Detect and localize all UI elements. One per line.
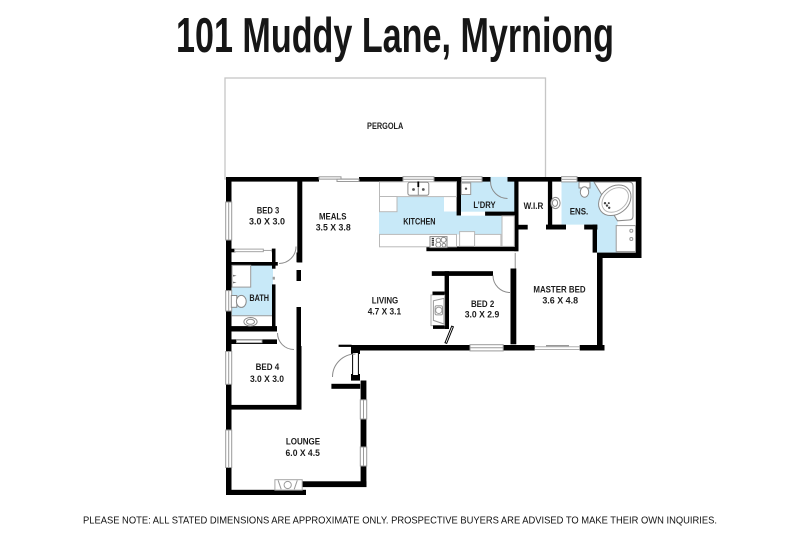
svg-text:W.I.R: W.I.R (524, 201, 544, 212)
svg-text:3.6 X 4.8: 3.6 X 4.8 (542, 295, 578, 306)
svg-text:PERGOLA: PERGOLA (367, 121, 404, 131)
svg-text:LIVING: LIVING (372, 295, 398, 306)
svg-text:BATH: BATH (249, 293, 269, 304)
svg-text:BED 4: BED 4 (256, 362, 280, 373)
svg-text:4.7 X 3.1: 4.7 X 3.1 (368, 307, 402, 318)
svg-text:BED 3: BED 3 (257, 205, 279, 216)
svg-text:BED 2: BED 2 (471, 299, 494, 310)
svg-text:101 Muddy Lane, Myrniong: 101 Muddy Lane, Myrniong (176, 9, 614, 63)
svg-text:3.0 X 2.9: 3.0 X 2.9 (465, 310, 500, 321)
svg-text:3.0 X 3.0: 3.0 X 3.0 (249, 217, 285, 228)
svg-text:ENS.: ENS. (570, 206, 589, 217)
svg-text:3.5 X 3.8: 3.5 X 3.8 (316, 223, 351, 234)
svg-text:LOUNGE: LOUNGE (286, 437, 320, 448)
svg-text:6.0 X 4.5: 6.0 X 4.5 (286, 448, 321, 459)
svg-text:KITCHEN: KITCHEN (403, 216, 435, 227)
svg-text:MEALS: MEALS (319, 212, 347, 223)
svg-text:MASTER BED: MASTER BED (533, 285, 585, 296)
svg-text:PLEASE NOTE: ALL STATED DIMENS: PLEASE NOTE: ALL STATED DIMENSIONS ARE A… (83, 516, 717, 527)
svg-text:3.0 X 3.0: 3.0 X 3.0 (250, 374, 284, 385)
svg-text:L’DRY: L’DRY (473, 200, 496, 211)
